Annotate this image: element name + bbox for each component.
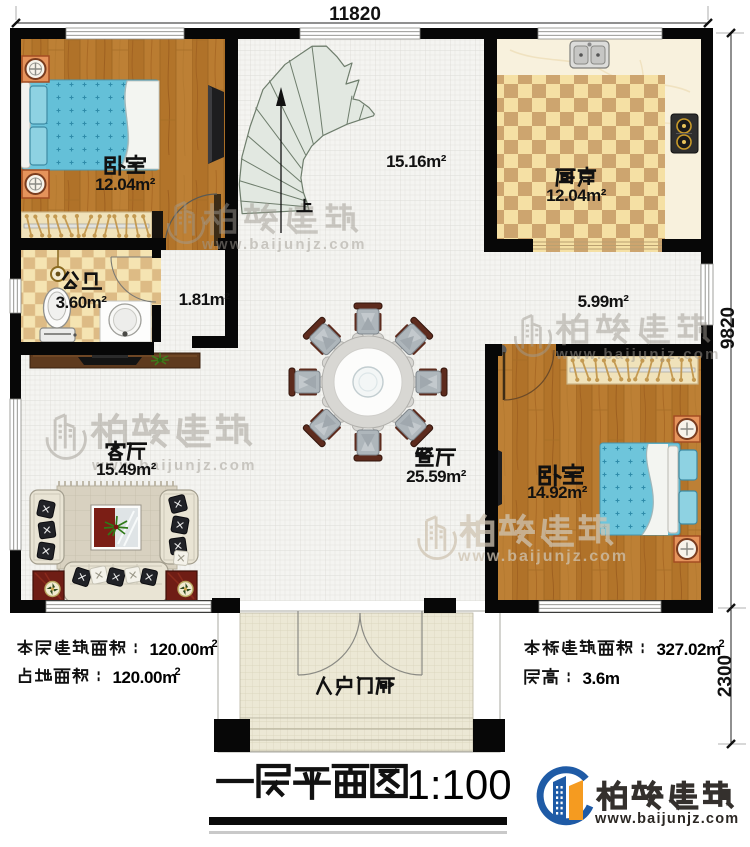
svg-text:www.baijunjz.com: www.baijunjz.com bbox=[555, 346, 721, 363]
svg-text:5.99m²: 5.99m² bbox=[578, 292, 630, 311]
svg-text:15.16m²: 15.16m² bbox=[386, 152, 447, 171]
svg-text:9820: 9820 bbox=[718, 307, 739, 349]
svg-text:15.49m²: 15.49m² bbox=[96, 460, 157, 479]
svg-text:3.6m: 3.6m bbox=[583, 669, 620, 688]
svg-text:120.00m: 120.00m bbox=[113, 668, 178, 687]
svg-text:3.60m²: 3.60m² bbox=[56, 293, 108, 312]
svg-text:2300: 2300 bbox=[715, 655, 736, 697]
svg-text:120.00m: 120.00m bbox=[150, 640, 215, 659]
svg-text:12.04m²: 12.04m² bbox=[546, 186, 607, 205]
svg-text:www.baijunjz.com: www.baijunjz.com bbox=[457, 548, 628, 565]
svg-text:25.59m²: 25.59m² bbox=[406, 467, 467, 486]
svg-text:327.02m: 327.02m bbox=[657, 640, 722, 659]
svg-text:14.92m²: 14.92m² bbox=[527, 483, 588, 502]
svg-text:11820: 11820 bbox=[329, 4, 381, 25]
svg-text:www.baijunjz.com: www.baijunjz.com bbox=[201, 236, 367, 253]
svg-text:12.04m²: 12.04m² bbox=[95, 175, 156, 194]
svg-text:1.81m²: 1.81m² bbox=[179, 290, 231, 309]
svg-text:www.baijunjz.com: www.baijunjz.com bbox=[594, 811, 739, 827]
svg-text:2: 2 bbox=[212, 638, 218, 650]
svg-text:2: 2 bbox=[175, 666, 181, 678]
svg-text:1:100: 1:100 bbox=[407, 761, 512, 808]
svg-text:2: 2 bbox=[719, 638, 725, 650]
